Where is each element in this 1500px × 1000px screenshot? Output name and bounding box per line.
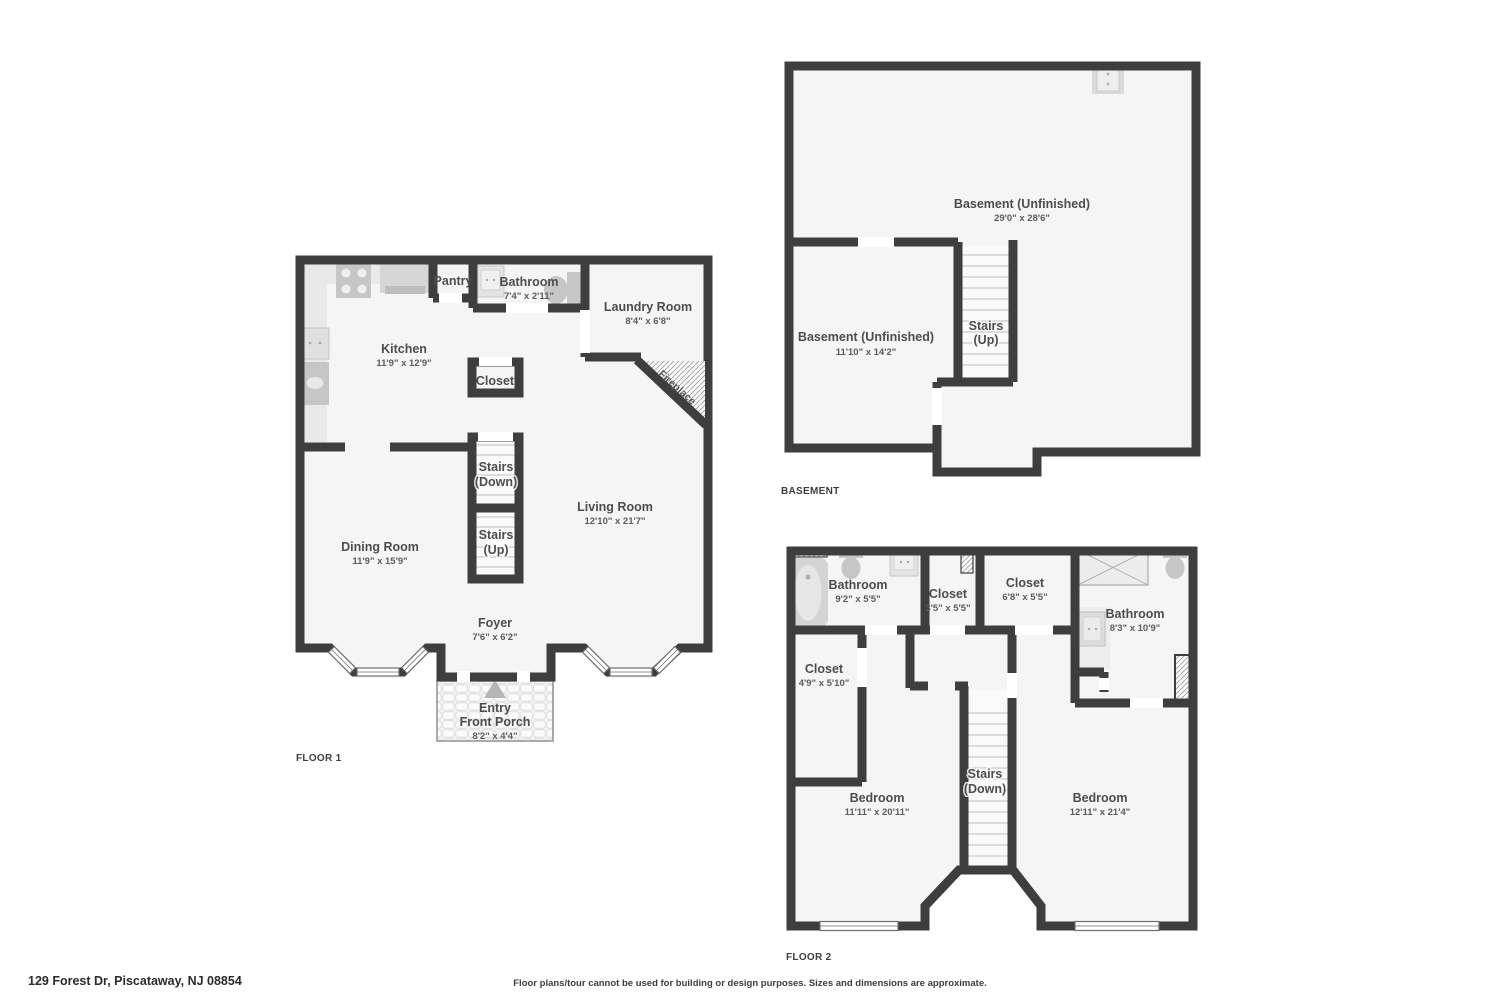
closet-small-label: Closet — [929, 587, 968, 601]
dining-dims: 11'9" x 15'9" — [352, 556, 407, 567]
bathroom-label: Bathroom — [499, 275, 558, 289]
basement-second-label: Basement (Unfinished) — [798, 330, 934, 344]
stairs-up-label: Stairs — [479, 528, 514, 542]
foyer-dims: 7'6" x 6'2" — [472, 632, 517, 643]
bath-left-label: Bathroom — [828, 578, 887, 592]
living-label: Living Room — [577, 500, 653, 514]
kitchen-label: Kitchen — [381, 342, 427, 356]
foyer-label: Foyer — [478, 616, 512, 630]
window-icon — [610, 668, 652, 676]
closet-small-dims: 3'5" x 5'5" — [925, 603, 970, 614]
floor2-tag: FLOOR 2 — [786, 952, 832, 963]
floor2-stairs-label: Stairs — [968, 767, 1003, 781]
laundry-dims: 8'4" x 6'8" — [625, 316, 670, 327]
basement-second-dims: 11'10" x 14'2" — [836, 347, 897, 358]
toilet-icon — [567, 272, 582, 309]
entry-label: Entry — [479, 701, 511, 715]
stairs-down-sub: (Down) — [475, 475, 517, 489]
basement-main-dims: 29'0" x 28'6" — [994, 213, 1050, 224]
bedroom-left-dims: 11'11" x 20'11" — [845, 807, 910, 818]
living-dims: 12'10" x 21'7" — [584, 516, 645, 527]
basement-stairs — [962, 246, 1009, 379]
closet-label: Closet — [476, 374, 515, 388]
dining-label: Dining Room — [341, 540, 419, 554]
window-icon — [820, 922, 898, 931]
basement-tag: BASEMENT — [781, 486, 840, 497]
floor1-tag: FLOOR 1 — [296, 753, 342, 764]
stove-icon — [336, 263, 371, 298]
bath-left-dims: 9'2" x 5'5" — [835, 594, 880, 605]
floor2-stairs-sub: (Down) — [964, 782, 1006, 796]
disclaimer-text: Floor plans/tour cannot be used for buil… — [0, 978, 1500, 989]
basement-stairs-sub: (Up) — [974, 333, 999, 347]
entry-dims: 8'2" x 4'4" — [472, 731, 517, 742]
window-icon — [1075, 922, 1159, 931]
laundry-label: Laundry Room — [604, 300, 692, 314]
stairs-down-label: Stairs — [479, 460, 514, 474]
bath-right-label: Bathroom — [1105, 607, 1164, 621]
bedroom-right-label: Bedroom — [1073, 791, 1128, 805]
bath-right-dims: 8'3" x 10'9" — [1110, 623, 1161, 634]
stairs-up-sub: (Up) — [484, 543, 509, 557]
window-icon — [357, 668, 399, 676]
floor1-plan: Fireplace — [296, 256, 712, 764]
dishwasher-icon — [302, 328, 329, 359]
basement-stairs-label: Stairs — [969, 319, 1004, 333]
front-porch-label: Front Porch — [460, 715, 531, 729]
bedroom-left-label: Bedroom — [850, 791, 905, 805]
basement-main-label: Basement (Unfinished) — [954, 197, 1090, 211]
closet-left-dims: 4'9" x 5'10" — [799, 678, 850, 689]
floor2-plan: Bathroom 9'2" x 5'5" Closet 3'5" x 5'5" … — [786, 547, 1197, 963]
refrigerator-handle — [385, 286, 425, 294]
closet-left-label: Closet — [805, 662, 844, 676]
pantry-label: Pantry — [434, 274, 473, 288]
floor2-windows — [820, 922, 1159, 931]
bathroom-dims: 7'4" x 2'11" — [504, 291, 554, 302]
floorplan-drawing: Fireplace — [0, 0, 1500, 1000]
bedroom-right-dims: 12'11" x 21'4" — [1070, 807, 1131, 818]
closet-mid-dims: 6'8" x 5'5" — [1002, 592, 1047, 603]
kitchen-dims: 11'9" x 12'9" — [376, 358, 431, 369]
basement-plan: Basement (Unfinished) 29'0" x 28'6" Base… — [781, 62, 1200, 497]
closet-mid-label: Closet — [1006, 576, 1045, 590]
floorplan-page: Fireplace — [0, 0, 1500, 1000]
